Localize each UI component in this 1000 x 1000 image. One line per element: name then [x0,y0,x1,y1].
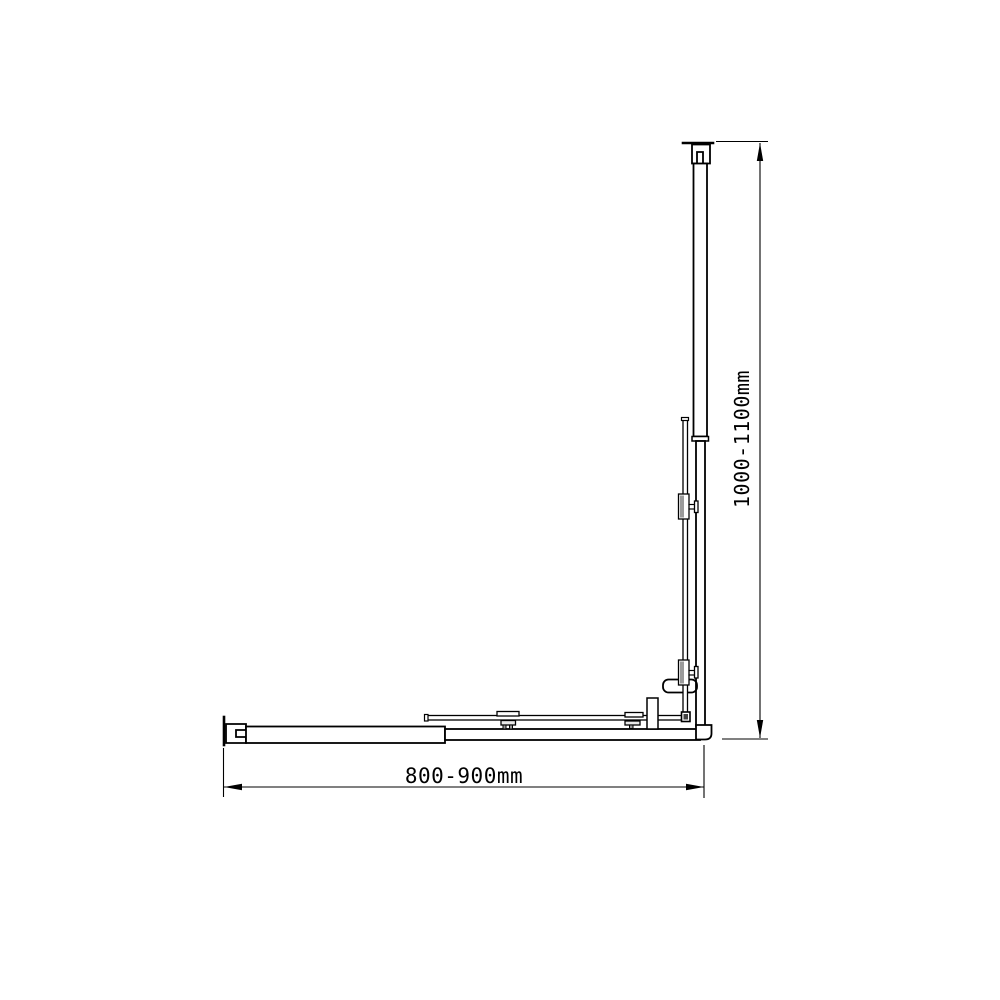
clamp-end-bar [695,667,699,679]
rod-clamp-vertical-upper [679,494,699,519]
arrow-left-icon [224,784,242,790]
clamp-end-bar [695,501,699,513]
vertical-dimension-label: 1000-1100mm [730,370,754,508]
vertical-outer-tube [694,164,708,437]
wall-bracket-top [692,145,710,164]
clamp-leg-left [503,725,506,729]
clamp-pad [680,662,684,684]
support-post [647,698,658,729]
arrow-right-icon [686,784,704,790]
wall-bracket-left [226,724,246,743]
horizontal-outer-tube [246,727,445,744]
corner-foot [696,725,712,740]
clamp-bottom-plate [501,721,516,726]
arrow-up-icon [757,143,763,161]
clamp-top-plate [625,713,643,718]
clamp-leg [630,725,634,729]
stabilizer-rod-left-cap [425,715,429,722]
vertical-dimension: 1000-1100mm [716,142,768,740]
horizontal-dimension-label: 800-900mm [405,764,523,788]
horizontal-dimension: 800-900mm [224,745,705,798]
clamp-bottom-plate [625,721,640,725]
technical-drawing: 1000-1100mm 800-900mm [0,0,1000,1000]
horizontal-inner-tube [445,729,700,740]
rod-clamp-horizontal-corner [625,713,643,729]
clamp-leg-right [510,725,513,729]
clamp-pad [680,496,684,518]
drawing-canvas: 1000-1100mm 800-900mm [0,0,1000,1000]
stabilizer-rod-top-cap [682,418,689,421]
arrow-down-icon [757,720,763,738]
stabilizer-rod-elbow-core [684,714,689,720]
stabilizer-rod [425,418,691,722]
clamp-top-plate [497,712,519,717]
